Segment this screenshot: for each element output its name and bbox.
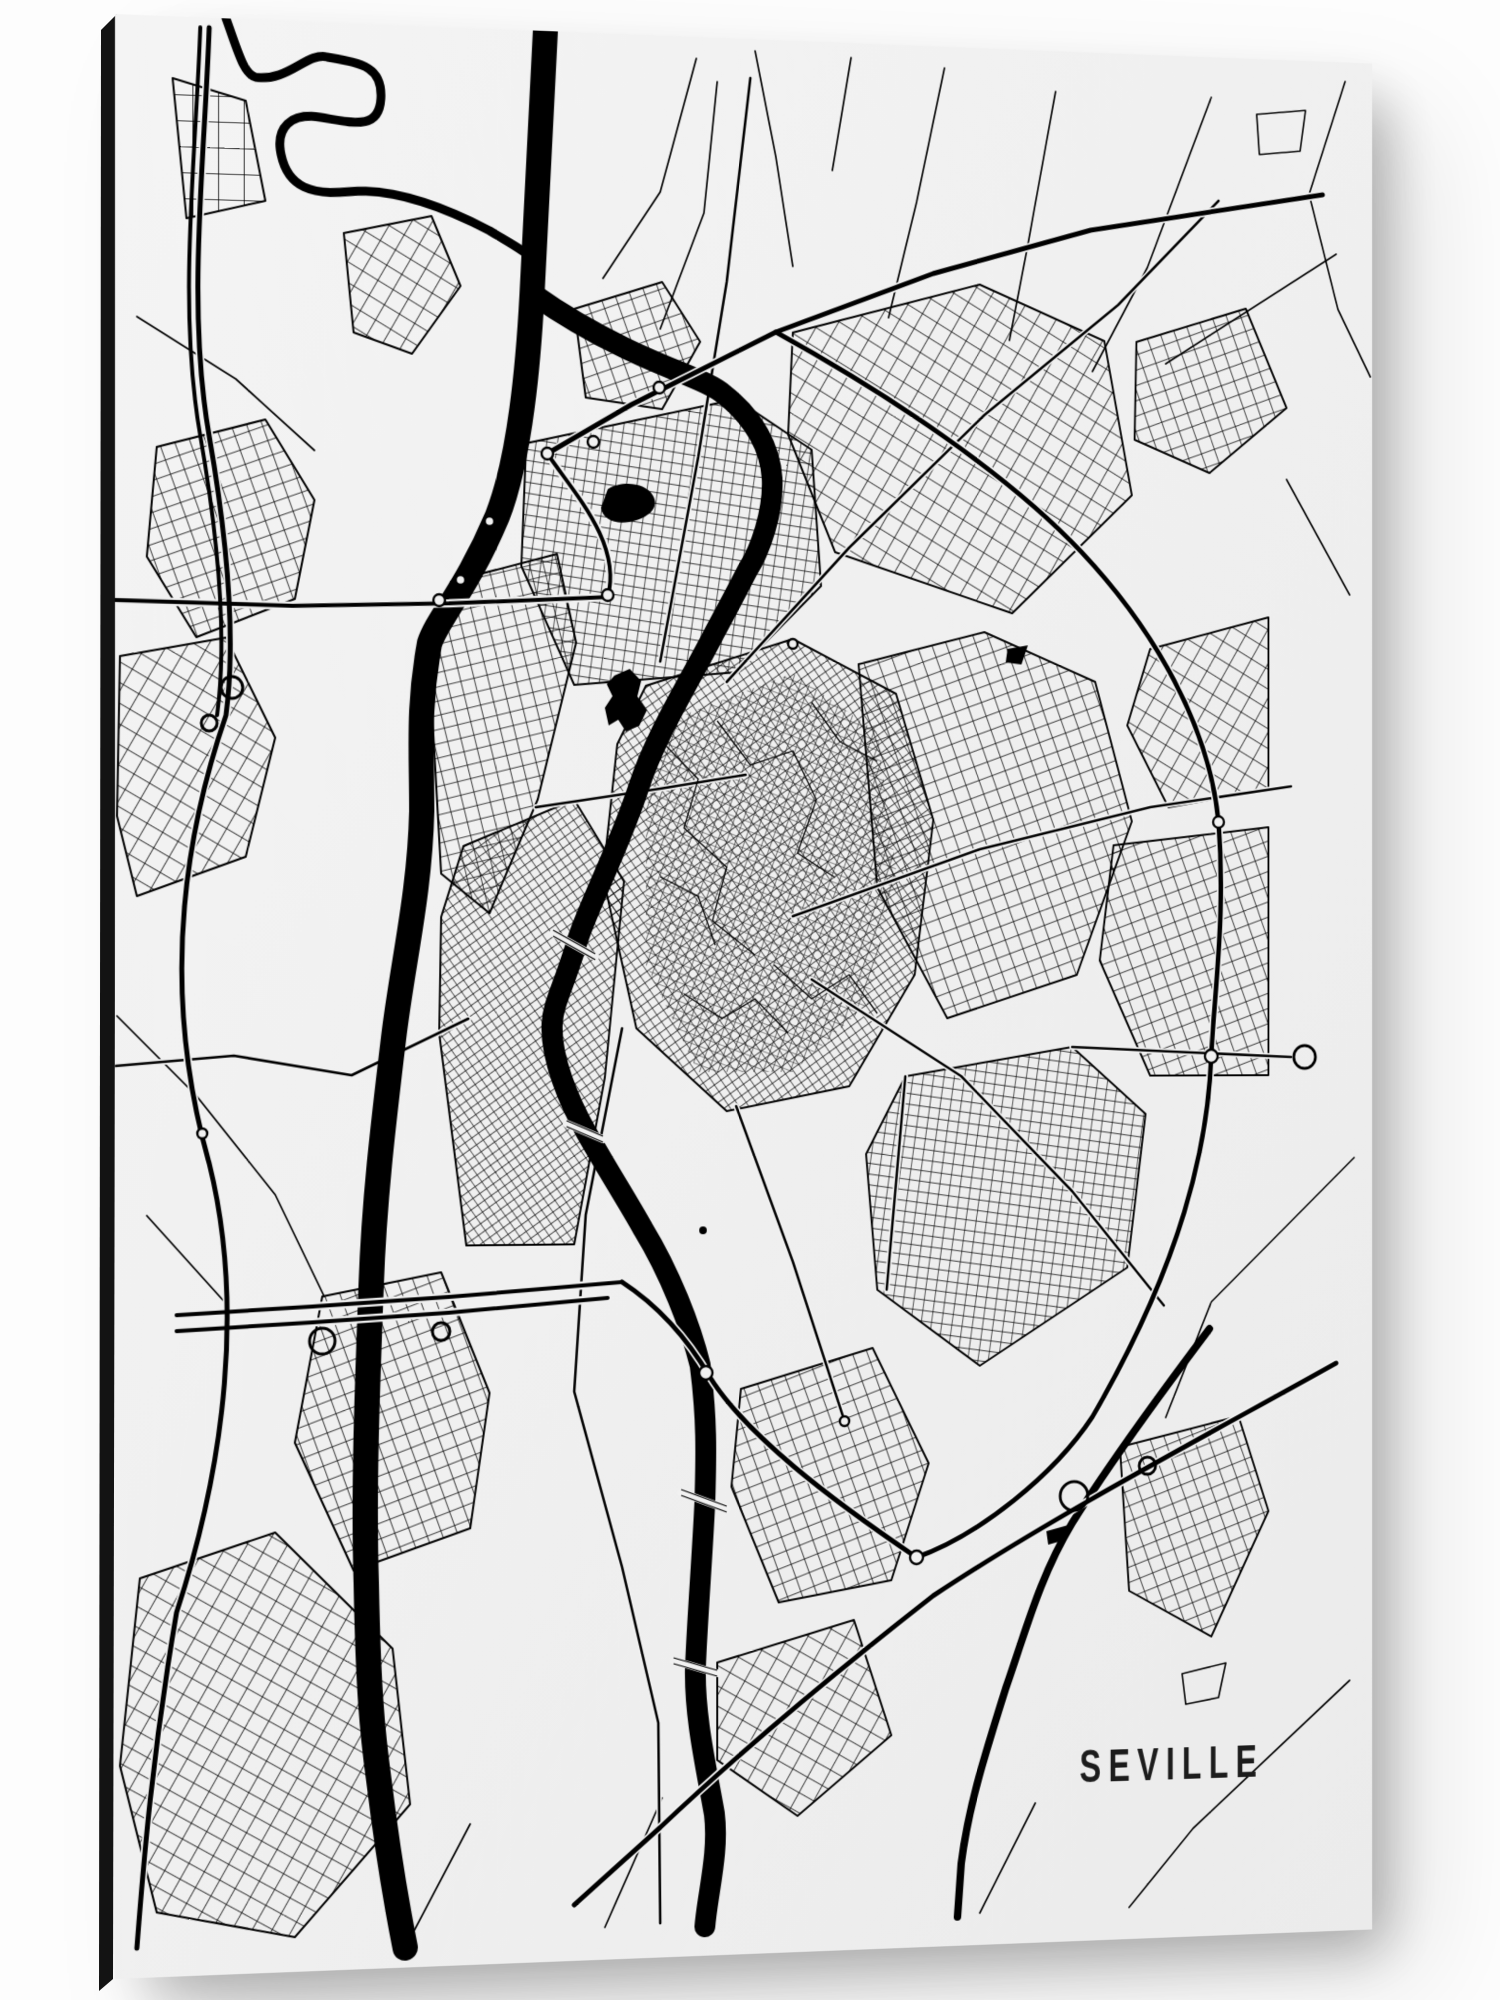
product-photo: SEVILLE xyxy=(0,0,1500,2000)
panel-scene: SEVILLE xyxy=(115,14,1445,1979)
pond-small xyxy=(699,1226,707,1234)
map-title: SEVILLE xyxy=(1080,1735,1264,1792)
seville-city-map: SEVILLE xyxy=(115,14,1372,1979)
art-print-panel: SEVILLE xyxy=(115,14,1372,1979)
